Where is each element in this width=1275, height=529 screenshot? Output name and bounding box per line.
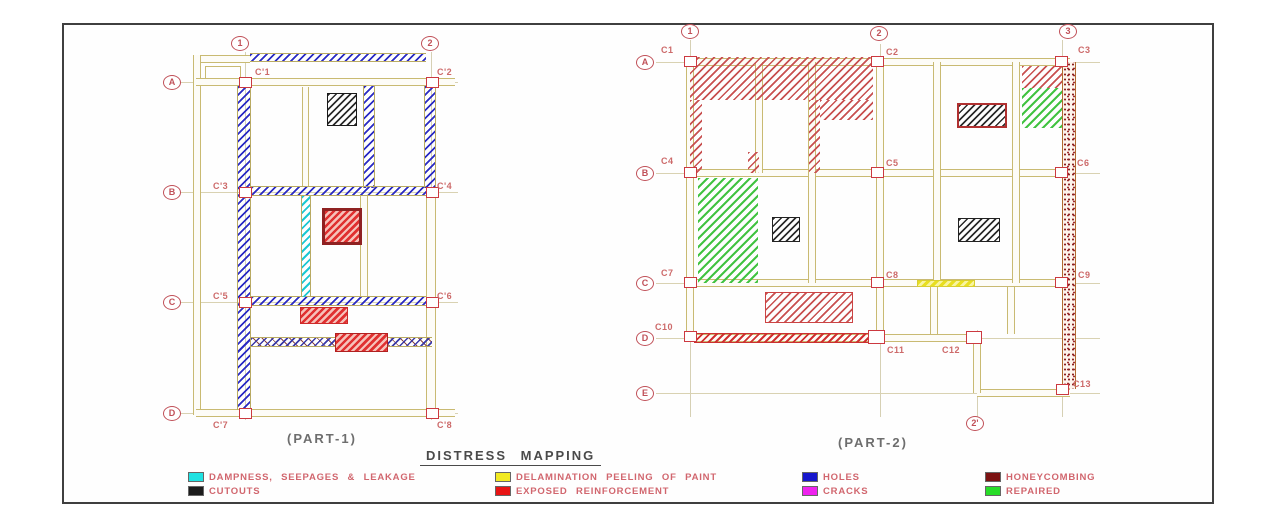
p1-exposed-reinforcement-patch-2 (335, 333, 388, 352)
p1-wall-top-left (193, 55, 250, 63)
p2-column-label-c4: C4 (661, 156, 674, 166)
p2-column-label-c1: C1 (661, 45, 674, 55)
p2-column-label-c11: C11 (887, 345, 905, 355)
p1-exposed-reinforcement-patch-1 (300, 307, 348, 324)
p2-cracks-strip-col1 (690, 100, 702, 173)
p2-column-label-c9: C9 (1078, 270, 1091, 280)
p1-axis-bubble-row-d: D (163, 406, 181, 421)
p1-wall-left (193, 55, 201, 415)
legend-swatch-holes (802, 472, 818, 482)
p2-cracks-stub (748, 152, 759, 173)
p1-dampness-strip (301, 196, 311, 297)
p1-column-label-c2: C'2 (437, 67, 452, 77)
p2-column-marker-c3 (1055, 56, 1068, 67)
p2-partition-cd-2 (1007, 287, 1015, 334)
p2-partition-ab-4 (1012, 62, 1020, 173)
p1-column-marker-c2 (426, 77, 439, 88)
p2-column-label-c3: C3 (1078, 45, 1091, 55)
legend-label-cracks: CRACKS (823, 486, 868, 497)
p2-cracks-band-row-a (690, 57, 873, 100)
p2-partition-cd-1 (930, 287, 938, 334)
p1-holes-column-mid (363, 86, 375, 188)
p1-column-label-c5: C'5 (213, 291, 228, 301)
p1-column-label-c3: C'3 (213, 181, 228, 191)
drawing-title: DISTRESS MAPPING (420, 448, 601, 466)
p2-column-marker-c10 (684, 331, 697, 342)
legend-label-delamination: DELAMINATION PEELING OF PAINT (516, 472, 717, 483)
p1-honeycombing-patch (322, 208, 362, 245)
p2-exposed-reinforcement-beam-row-d (694, 333, 870, 343)
p1-column-marker-c3 (239, 187, 252, 198)
p2-axis-bubble-col-2: 2 (870, 26, 888, 41)
p1-column-label-c1: C'1 (255, 67, 270, 77)
p2-cutout-right (958, 218, 1000, 242)
p2-column-marker-c7 (684, 277, 697, 288)
p2-exposed-reinforcement-patch (765, 292, 853, 323)
p2-caption: (PART-2) (838, 435, 908, 450)
p1-column-label-c4: C'4 (437, 181, 452, 191)
legend-swatch-cracks (802, 486, 818, 496)
p2-cutout-left (772, 217, 800, 242)
p2-column-marker-c9 (1055, 277, 1068, 288)
p2-column-marker-c12 (966, 331, 982, 344)
p2-column-label-c10: C10 (655, 322, 673, 332)
p1-caption: (PART-1) (287, 431, 357, 446)
p2-column-label-c6: C6 (1077, 158, 1090, 168)
p2-column-marker-c13 (1056, 384, 1069, 395)
p2-cutout-red-border (957, 103, 1007, 128)
p1-holes-beam-row-c (251, 296, 426, 306)
legend-swatch-repaired (985, 486, 1001, 496)
p1-axis-bubble-row-a: A (163, 75, 181, 90)
p2-axis-bubble-row-a: A (636, 55, 654, 70)
p1-holes-column-2 (424, 86, 436, 188)
p1-column-marker-c5 (239, 297, 252, 308)
p2-wall-col2 (876, 62, 884, 338)
p2-axis-bubble-row-c: C (636, 276, 654, 291)
p1-column-label-c6: C'6 (437, 291, 452, 301)
p2-axis-bubble-col-1: 1 (681, 24, 699, 39)
legend-label-cutouts: CUTOUTS (209, 486, 260, 497)
p2-repaired-block-left (698, 178, 758, 283)
p2-column-label-c8: C8 (886, 270, 899, 280)
p2-delamination-strip (917, 280, 975, 287)
p1-wall-row-a (196, 78, 455, 86)
legend-swatch-cutouts (188, 486, 204, 496)
legend-label-honeycombing: HONEYCOMBING (1006, 472, 1095, 483)
p1-column-label-c8: C'8 (437, 420, 452, 430)
p2-column-label-c7: C7 (661, 268, 674, 278)
p2-column-marker-c4 (684, 167, 697, 178)
legend-swatch-exposed-reinforcement (495, 486, 511, 496)
p2-column-label-c12: C12 (942, 345, 960, 355)
p2-column-marker-c5 (871, 167, 884, 178)
legend-label-exposed-reinforcement: EXPOSED REINFORCEMENT (516, 486, 669, 497)
legend-swatch-dampness (188, 472, 204, 482)
p1-column-marker-c8 (426, 408, 439, 419)
p1-axis-bubble-row-b: B (163, 185, 181, 200)
legend-label-repaired: REPAIRED (1006, 486, 1061, 497)
p1-wall-row-d (196, 409, 455, 417)
legend-label-dampness: DAMPNESS, SEEPAGES & LEAKAGE (209, 472, 416, 483)
p2-partition-bc-2 (933, 173, 941, 283)
p1-column-label-c7: C'7 (213, 420, 228, 430)
p2-column-label-c13: C13 (1073, 379, 1091, 389)
p2-honeycombing-strip (1062, 62, 1076, 389)
p1-partition-ab (302, 87, 309, 187)
p2-axis-bubble-row-d: D (636, 331, 654, 346)
p2-column-label-c2: C2 (886, 47, 899, 57)
p2-wall-c12-down (973, 342, 981, 393)
p1-holes-beam-top (250, 53, 426, 62)
legend-swatch-honeycombing (985, 472, 1001, 482)
p2-cracks-strip-mid (809, 100, 820, 173)
p2-column-marker-c8 (871, 277, 884, 288)
p2-column-marker-c2 (871, 56, 884, 67)
p2-axis-bubble-col-2prime: 2' (966, 416, 984, 431)
p2-column-marker-c11 (868, 330, 885, 344)
p2-column-marker-c1 (684, 56, 697, 67)
distress-mapping-drawing: 1 2 A B C D C'1 C'2 C'3 C'4 C'5 C'6 C'7 … (0, 0, 1275, 529)
p1-holes-column-1 (237, 86, 251, 410)
p2-axis-bubble-col-3: 3 (1059, 24, 1077, 39)
p2-cracks-block-mid (820, 100, 873, 120)
legend-swatch-delamination (495, 472, 511, 482)
p1-axis-bubble-col-2: 2 (421, 36, 439, 51)
p2-repaired-block-top (1022, 88, 1062, 128)
p1-column-marker-c7 (239, 408, 252, 419)
p2-cracks-block-near-c3 (1022, 66, 1062, 88)
legend-label-holes: HOLES (823, 472, 860, 483)
p1-axis-bubble-row-c: C (163, 295, 181, 310)
p1-column-marker-c1 (239, 77, 252, 88)
p2-partition-bc-1 (808, 173, 816, 283)
p2-partition-bc-3 (1012, 173, 1020, 283)
p1-axis-bubble-col-1: 1 (231, 36, 249, 51)
p2-axis-bubble-row-e: E (636, 386, 654, 401)
p2-column-marker-c6 (1055, 167, 1068, 178)
p1-cutout-patch (327, 93, 357, 126)
p2-axis-bubble-row-b: B (636, 166, 654, 181)
p2-column-label-c5: C5 (886, 158, 899, 168)
p2-partition-ab-3 (933, 62, 941, 173)
p1-holes-beam-row-b (251, 186, 426, 196)
